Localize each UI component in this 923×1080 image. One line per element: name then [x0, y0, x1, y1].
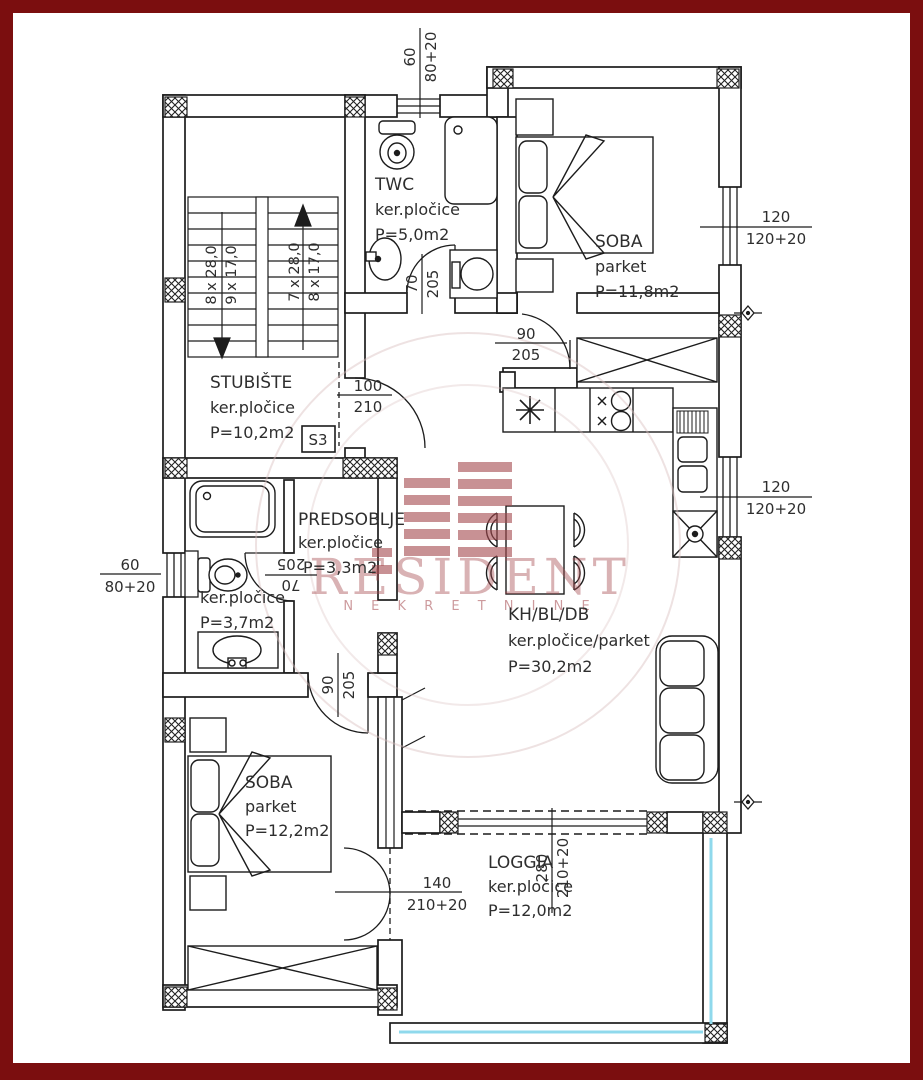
- unit-badge: S3: [302, 426, 335, 452]
- svg-text:P=5,0m2: P=5,0m2: [375, 225, 449, 244]
- svg-text:60: 60: [120, 556, 139, 574]
- wardrobe-soba1: [577, 338, 717, 382]
- svg-text:205: 205: [424, 270, 442, 299]
- wall-loggia-top-left: [402, 812, 440, 833]
- svg-text:PREDSOBLJE: PREDSOBLJE: [298, 510, 405, 530]
- room-label-soba1: SOBA parket P=11,8m2: [595, 232, 679, 301]
- washing-machine: [450, 250, 497, 298]
- svg-text:100: 100: [354, 377, 383, 395]
- svg-text:ker.pločice: ker.pločice: [375, 200, 460, 219]
- svg-text:S3: S3: [308, 431, 327, 449]
- svg-text:90: 90: [516, 325, 535, 343]
- svg-text:205: 205: [512, 346, 541, 364]
- svg-text:140: 140: [423, 874, 452, 892]
- svg-text:STUBIŠTE: STUBIŠTE: [210, 371, 292, 393]
- dim-twc-door: 70 205: [403, 254, 442, 314]
- wall-right-3: [719, 537, 741, 833]
- svg-text:7 x 28,0: 7 x 28,0: [287, 242, 303, 301]
- svg-text:120: 120: [762, 478, 791, 496]
- dim-soba2-door: 90 205: [319, 653, 358, 717]
- wardrobe-soba2: [188, 946, 377, 990]
- dim-top-window: 60 80+20: [401, 28, 440, 118]
- svg-text:ker.pločice: ker.pločice: [210, 398, 295, 417]
- svg-text:ker.pločice: ker.pločice: [488, 877, 573, 896]
- chair: [574, 513, 585, 547]
- svg-text:KH/BL/DB: KH/BL/DB: [508, 605, 589, 625]
- wall-left-lower: [163, 597, 185, 1010]
- maroon-frame: RESIDENT N E K R E T N I N E 60 80+20 12…: [0, 0, 923, 1080]
- wall-bath-south: [163, 673, 308, 697]
- svg-text:SOBA: SOBA: [245, 773, 293, 793]
- svg-text:9 x 17,0: 9 x 17,0: [224, 245, 240, 304]
- svg-text:205: 205: [340, 671, 358, 700]
- svg-text:P=12,0m2: P=12,0m2: [488, 901, 572, 920]
- svg-text:210: 210: [354, 398, 383, 416]
- pillow: [191, 814, 219, 866]
- svg-text:80+20: 80+20: [105, 578, 156, 596]
- svg-text:SOBA: SOBA: [595, 232, 643, 252]
- svg-text:ker.pločice/parket: ker.pločice/parket: [508, 631, 650, 650]
- svg-text:205: 205: [277, 555, 306, 573]
- stair-divider: [256, 197, 268, 357]
- svg-text:P=30,2m2: P=30,2m2: [508, 657, 592, 676]
- wall-twc-south-left: [345, 293, 407, 313]
- svg-text:120+20: 120+20: [746, 230, 806, 248]
- room-label-stubiste: STUBIŠTE ker.pločice P=10,2m2: [210, 371, 295, 442]
- nightstand: [516, 99, 553, 135]
- svg-text:210+20: 210+20: [407, 896, 467, 914]
- fridge-vents: [677, 411, 708, 433]
- wall-bath-east-upper: [284, 480, 294, 553]
- wall-loggia-parapet-right: [703, 833, 727, 1043]
- svg-text:120: 120: [762, 208, 791, 226]
- room-label-kupaonica: ker.pločice P=3,7m2: [200, 588, 285, 632]
- wall-right-2: [719, 265, 741, 457]
- svg-text:LOGGIA: LOGGIA: [488, 853, 554, 873]
- window-left-bath: [167, 551, 198, 597]
- dishwasher-icon: [516, 396, 544, 424]
- dim-soba1-door: 90 205: [495, 325, 567, 364]
- wall-soba1-corner: [497, 293, 517, 313]
- twc-sink: [366, 238, 401, 280]
- window-right-upper: [723, 187, 737, 265]
- svg-text:ker.pločice: ker.pločice: [298, 533, 383, 552]
- bathtub: [190, 481, 275, 537]
- window-top-twc: [397, 99, 440, 113]
- svg-text:90: 90: [319, 675, 337, 694]
- svg-text:8 x 17,0: 8 x 17,0: [307, 242, 323, 301]
- pillow: [519, 141, 547, 193]
- loggia-french-door: [344, 848, 390, 940]
- dim-left-window: 60 80+20: [100, 556, 161, 596]
- nightstand: [190, 718, 226, 752]
- shower-tray: [445, 117, 497, 204]
- svg-text:8 x 28,0: 8 x 28,0: [204, 245, 220, 304]
- bath-sink: [198, 632, 278, 668]
- nightstand: [190, 876, 226, 910]
- dim-right-window-upper: 120 120+20: [700, 208, 812, 248]
- nightstand: [516, 259, 553, 292]
- sofa: [656, 636, 718, 783]
- wall-soba2-east-glazed: [378, 697, 402, 848]
- wall-stair-east-stub: [345, 448, 365, 458]
- svg-text:ker.pločice: ker.pločice: [200, 588, 285, 607]
- wall-left-upper: [163, 95, 185, 553]
- wall-stair-east: [345, 95, 365, 378]
- room-label-dnevni: KH/BL/DB ker.pločice/parket P=30,2m2: [508, 605, 650, 676]
- svg-text:P=3,3m2: P=3,3m2: [303, 558, 377, 577]
- toilet: [379, 121, 415, 169]
- svg-text:P=12,2m2: P=12,2m2: [245, 821, 329, 840]
- pillow: [191, 760, 219, 812]
- svg-text:80+20: 80+20: [422, 32, 440, 83]
- svg-text:TWC: TWC: [374, 175, 414, 195]
- pillow: [519, 196, 547, 248]
- svg-text:P=11,8m2: P=11,8m2: [595, 282, 679, 301]
- svg-text:parket: parket: [245, 797, 296, 816]
- wall-soba1-west: [497, 117, 517, 313]
- svg-text:60: 60: [401, 47, 419, 66]
- svg-text:70: 70: [403, 274, 421, 293]
- svg-text:parket: parket: [595, 257, 646, 276]
- watermark-brand: RESIDENT: [309, 548, 631, 606]
- wall-bath-south-stub: [368, 673, 397, 697]
- dim-loggia-door: 140 210+20: [335, 874, 467, 914]
- svg-text:P=10,2m2: P=10,2m2: [210, 423, 294, 442]
- bath-toilet: [198, 558, 247, 592]
- wall-loggia-top-right: [667, 812, 703, 833]
- floor-plan-canvas: RESIDENT N E K R E T N I N E 60 80+20 12…: [0, 0, 923, 1080]
- wall-soba1-top: [487, 67, 741, 88]
- kitchen-counter: [503, 388, 673, 432]
- svg-text:P=3,7m2: P=3,7m2: [200, 613, 274, 632]
- svg-text:120+20: 120+20: [746, 500, 806, 518]
